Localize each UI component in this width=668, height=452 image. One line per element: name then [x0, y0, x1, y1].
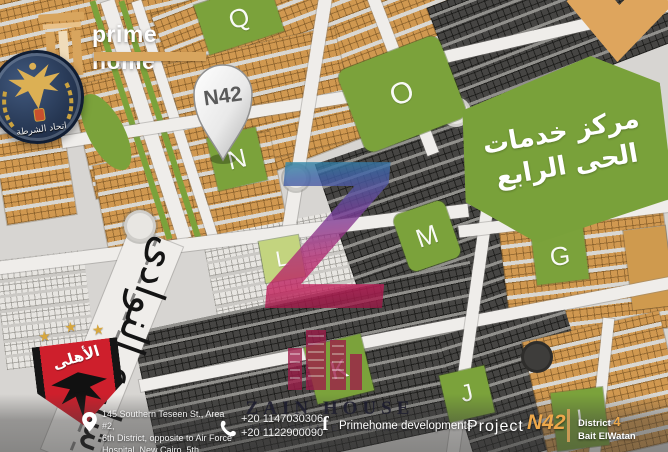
project-label: Project	[467, 418, 524, 436]
star-icon: ★	[37, 327, 52, 345]
district-block: District 4 Bait ElWatan	[578, 413, 636, 444]
roundabout	[286, 168, 306, 188]
prime-home-accent-bar	[94, 52, 206, 61]
address-line: 6th District, opposite to Air Force	[102, 432, 234, 444]
location-pin-icon	[82, 412, 97, 432]
block-letter-l: L	[274, 245, 291, 273]
address-block: 145 Southern Teseen St., Area #2, 6th Di…	[102, 408, 234, 452]
footer-divider	[567, 409, 570, 442]
prime-home-name: prime home	[92, 21, 203, 75]
address-line: 145 Southern Teseen St., Area #2,	[102, 408, 234, 432]
star-icon: ★	[63, 318, 78, 336]
roundabout	[524, 344, 550, 370]
facebook-icon: f	[322, 413, 329, 436]
phone-numbers: +20 1147030306 +20 1122900090	[241, 412, 323, 441]
phone-number: +20 1122900090	[241, 426, 323, 440]
phone-number: +20 1147030306	[241, 412, 323, 426]
police-union-badge: اتحاد الشرطة	[0, 44, 90, 150]
flyer-canvas: Q O N L M G K J I مركز خدمات الحى الرابع…	[0, 0, 668, 452]
district-number: 4	[613, 414, 620, 429]
green-block-l: L	[259, 235, 306, 283]
district-name: District	[578, 418, 611, 429]
block-letter-g: G	[548, 239, 572, 272]
address-line: Hospital, New Cairo, 5th Settlement.	[102, 444, 234, 452]
block-letter-m: M	[412, 218, 443, 254]
star-icon: ★	[91, 321, 106, 339]
block-letter-k: K	[327, 352, 351, 386]
project-code: N42	[527, 411, 566, 435]
district-area: Bait ElWatan	[578, 431, 636, 444]
block-letter-q: Q	[225, 0, 254, 36]
facebook-page-name: Primehome developments	[339, 420, 473, 432]
block-letter-o: O	[385, 74, 419, 114]
phone-icon	[219, 420, 237, 438]
